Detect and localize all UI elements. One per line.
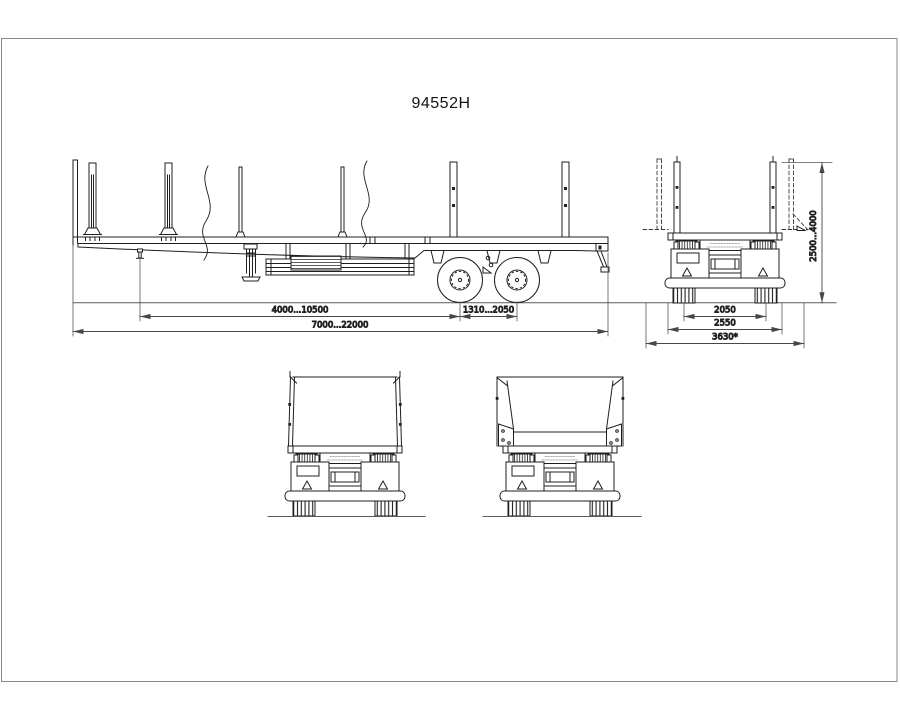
drawing-title: 94552H — [411, 95, 470, 112]
dim-track-width: 2050 — [714, 306, 736, 316]
dim-frame-width: 2550 — [714, 319, 736, 329]
drawing-canvas: 94552H — [0, 0, 900, 720]
dim-kingpin-to-axle: 4000...10500 — [272, 306, 329, 316]
dim-axle-base: 1310...2050 — [463, 306, 514, 316]
dim-overall-length: 7000...22000 — [312, 321, 369, 331]
sheet-border — [2, 39, 898, 682]
dim-max-width: 3630* — [712, 333, 738, 343]
dim-stake-height: 2500...4000 — [809, 210, 819, 261]
